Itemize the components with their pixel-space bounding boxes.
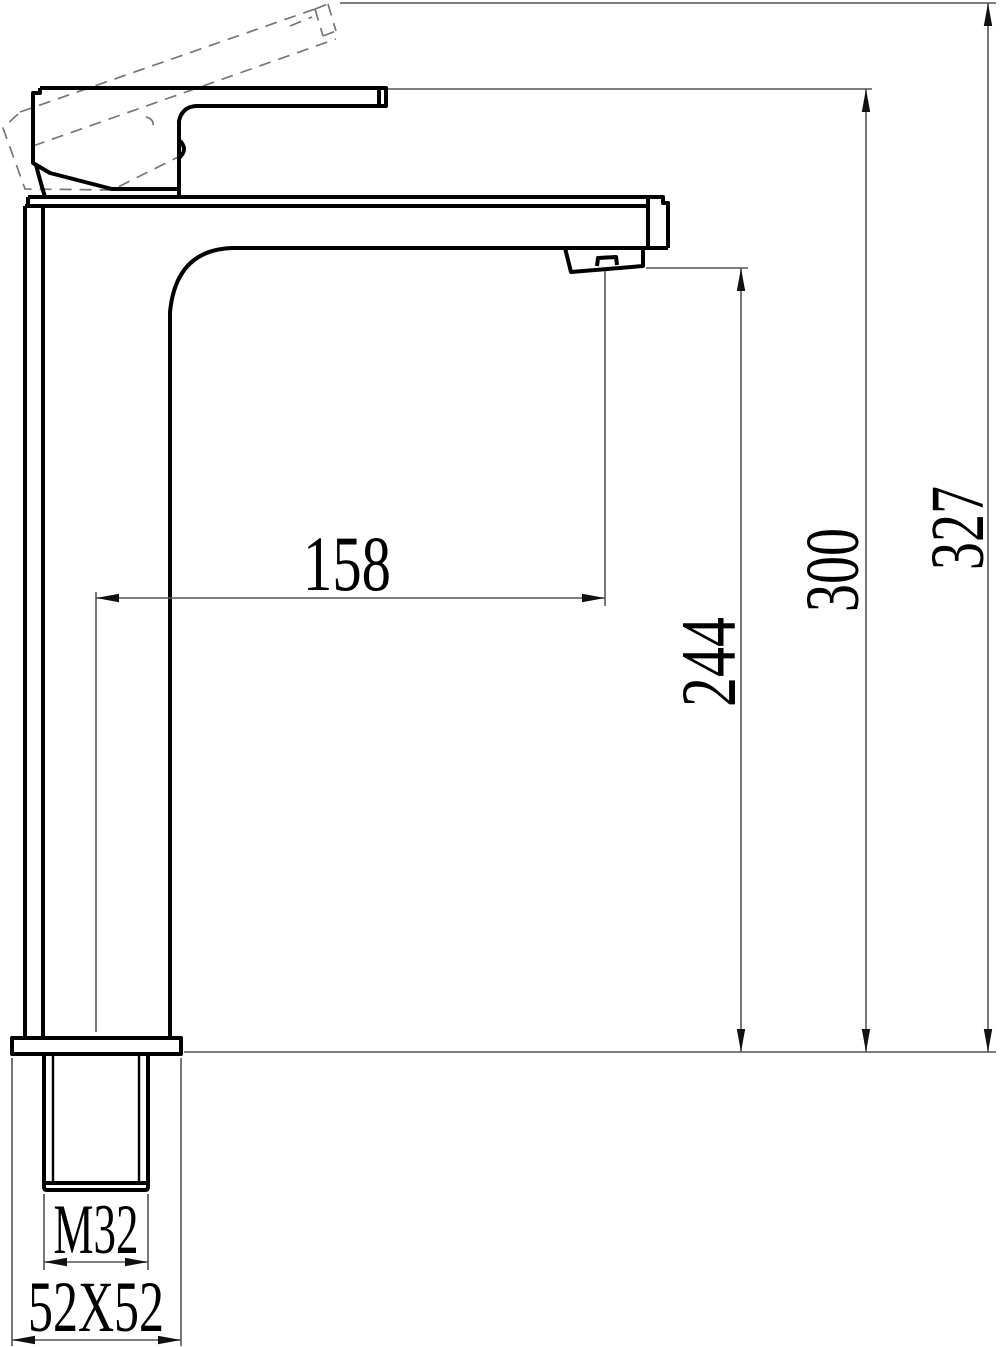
- phantom-lever-top-edge: [20, 9, 315, 112]
- arrow-158-right: [582, 594, 605, 602]
- arrow-327-top: [984, 3, 992, 26]
- phantom-lever-endcap-outer: [328, 4, 336, 31]
- phantom-raised-handle: [3, 4, 336, 190]
- phantom-lever-bottom-edge: [33, 39, 336, 146]
- spout-top-plate: [25, 197, 648, 206]
- phantom-lever-inner-mark: [290, 17, 312, 26]
- drawing-sheet: 158 244 300 327 M32 52X52: [0, 0, 1000, 1347]
- phantom-lever-tip-bottom: [323, 31, 336, 36]
- base-size-label: 52X52: [28, 1267, 164, 1347]
- dim-158-label: 158: [303, 520, 391, 607]
- dim-327-label: 327: [916, 486, 1000, 570]
- aerator-notch: [597, 257, 617, 266]
- dim-300-label: 300: [791, 528, 875, 612]
- faucet-outline: [12, 88, 668, 1190]
- arrow-300-bottom: [862, 1029, 870, 1052]
- arrow-300-top: [862, 89, 870, 112]
- arrow-244-top: [737, 268, 745, 291]
- arrow-244-bottom: [737, 1029, 745, 1052]
- base-flange: [12, 1038, 181, 1054]
- inlet-thread-inner-lines: [53, 1054, 139, 1183]
- thread-size-label: M32: [54, 1191, 139, 1269]
- arrow-158-left: [96, 594, 119, 602]
- handle-bar-endcap: [379, 88, 386, 106]
- dim-244-label: 244: [665, 617, 752, 707]
- arrow-327-bottom: [984, 1029, 992, 1052]
- handle-bar-bottom: [179, 106, 379, 190]
- inlet-thread-outline: [44, 1054, 148, 1190]
- spout-underside-and-body-right-edge: [170, 248, 668, 1038]
- aerator-outline: [565, 248, 643, 272]
- dimension-labels: 158 244 300 327 M32 52X52: [28, 486, 1000, 1347]
- spout-endcap: [648, 197, 668, 248]
- phantom-lever-endcap-inner: [315, 9, 323, 36]
- phantom-pivot-arc: [146, 117, 153, 129]
- faucet-technical-drawing: 158 244 300 327 M32 52X52: [0, 0, 1000, 1347]
- phantom-lever-tip-top: [315, 4, 328, 9]
